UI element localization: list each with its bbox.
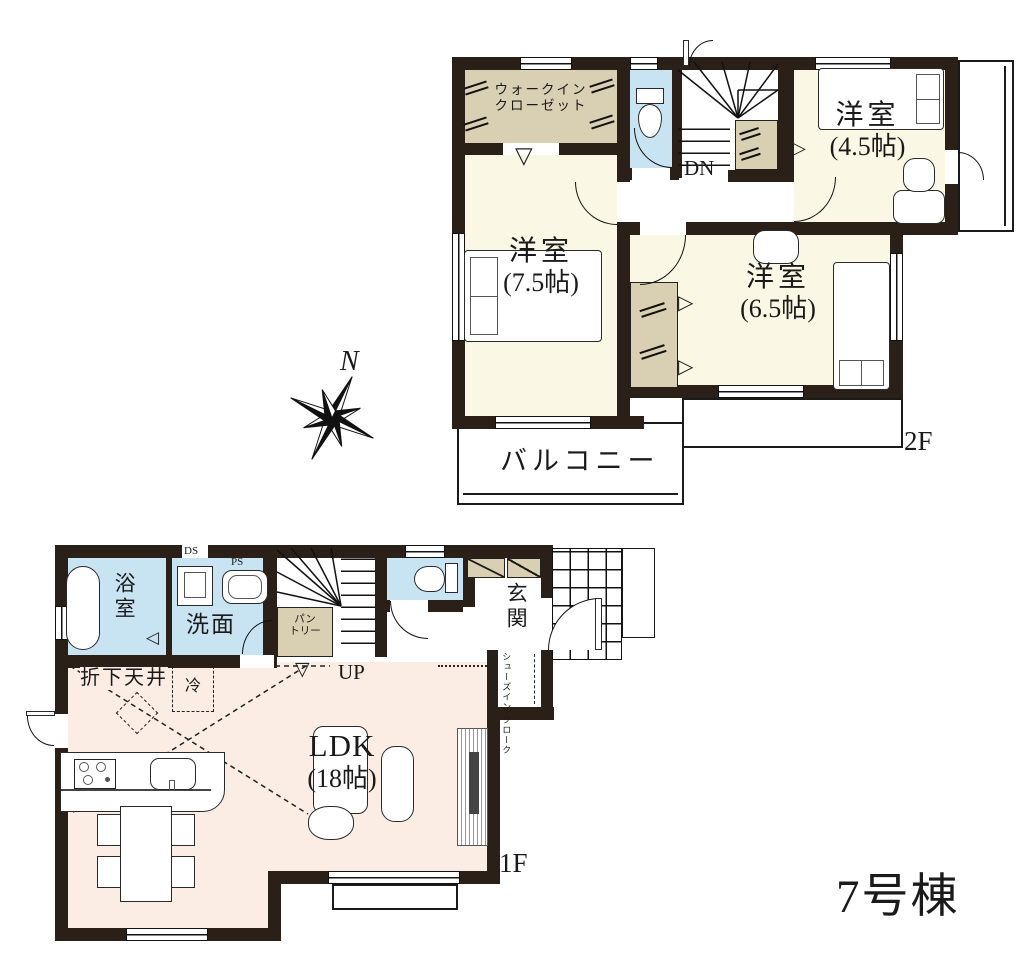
chair-icon [171, 814, 195, 846]
washing-machine-drum [184, 572, 206, 598]
chair-icon [97, 856, 121, 888]
wall [778, 57, 794, 177]
door-opening [640, 222, 686, 235]
approach-step [622, 548, 655, 638]
duct-space-label: DS [184, 545, 198, 558]
entrance-label: 玄関 [504, 582, 528, 632]
bathtub-icon [66, 566, 100, 650]
room-name: 洋室 [470, 236, 612, 268]
kitchen-door-arc [27, 716, 54, 746]
stairs-winder-icon [277, 548, 341, 606]
door-opening [240, 655, 274, 668]
closet-open-icon: ▷ [678, 356, 693, 376]
chair-icon [171, 856, 195, 888]
window [630, 57, 658, 70]
door-opening [945, 150, 958, 184]
window [718, 385, 804, 398]
room-name: 洋室 [795, 100, 940, 132]
tv-icon [469, 752, 479, 814]
room-name: LDK [288, 728, 396, 764]
room-size: (6.5帖) [712, 294, 844, 324]
sic-shelf [534, 654, 535, 704]
sic-line1: シューズイン [501, 652, 511, 712]
room-size: (4.5帖) [795, 132, 940, 162]
bedroom-6-5-label: 洋室 (6.5帖) [712, 262, 844, 324]
bedroom-7-5-label: 洋室 (7.5帖) [470, 236, 612, 298]
terrace-step [332, 884, 458, 910]
stool-icon [753, 230, 799, 264]
shoe-cabinet-icon [507, 558, 541, 578]
stairs-door-icon: ▽ [295, 660, 310, 679]
stairs-treads-icon [341, 548, 375, 648]
floor1-label: 1F [499, 848, 528, 879]
wall [945, 57, 958, 235]
wash-basin-bowl [228, 575, 262, 599]
bedroom-4-5-label: 洋室 (4.5帖) [795, 100, 940, 162]
burner-icon [79, 762, 89, 772]
chair-icon [97, 814, 121, 846]
closet-open-icon: ▷ [678, 292, 693, 312]
pipe-space-label: PS [231, 556, 243, 569]
shoe-cabinet-icon [467, 558, 505, 578]
sic-shelf [494, 654, 495, 704]
toilet-tank-icon [636, 88, 664, 104]
balcony-south-east [682, 398, 903, 448]
pantry-line1: パン [281, 614, 329, 626]
hall-ldk-boundary [438, 665, 490, 667]
sliding-door-balcony [495, 416, 591, 429]
balcony-rail-line [463, 493, 678, 495]
toilet-door-arc [390, 601, 428, 639]
shoes-in-closet-label: シューズイン クローク [498, 652, 513, 706]
washroom-label: 洗面 [186, 612, 236, 638]
room-name: 洋室 [712, 262, 844, 294]
balcony-label: バルコニー [500, 446, 659, 477]
closet-chest [630, 282, 678, 388]
ldk-label: LDK (18帖) [288, 728, 396, 794]
entrance-door-leaf [595, 598, 602, 650]
window [126, 928, 208, 941]
refrigerator-label: 冷 [185, 678, 201, 696]
stairs-down-label: DN [684, 156, 714, 180]
door-arc [689, 40, 713, 66]
wall [166, 558, 172, 655]
toilet-tank-icon [445, 563, 458, 593]
window [520, 57, 572, 70]
window [405, 545, 445, 558]
desk-icon [893, 190, 945, 224]
bath-door-icon: ◁ [146, 630, 159, 647]
wall [375, 545, 387, 657]
pantry-line2: トリー [281, 626, 329, 638]
pillow-icon [839, 360, 884, 386]
faucet-icon [169, 780, 175, 791]
sic-line2: クローク [501, 715, 511, 755]
wall [463, 545, 553, 558]
pantry-label: パン トリー [281, 614, 329, 638]
stairs-winder-icon [678, 62, 778, 118]
burner-icon [83, 775, 93, 785]
ottoman-icon [308, 806, 354, 840]
folding-door-icon: ▽ [515, 145, 533, 168]
burner-icon [96, 762, 106, 772]
wic-line2: クローゼット [473, 98, 609, 114]
window [328, 871, 460, 884]
compass-icon [282, 360, 386, 476]
stairs-up-label: UP [338, 660, 365, 684]
floor2-label: 2F [904, 426, 933, 457]
door-opening [632, 168, 670, 180]
door-opening [55, 714, 68, 748]
window [890, 253, 903, 341]
wall [541, 650, 553, 720]
floor-plan: DN ▽ ▷ ▷ ▷ ウォークイン クローゼット 洋室 (7.5帖) 洋室 (4… [0, 0, 1024, 963]
door-leaf [683, 40, 689, 66]
dropped-ceiling-label: 折下天井 [80, 667, 168, 690]
chair-icon [903, 158, 935, 192]
burner-knob [105, 777, 110, 782]
balcony-rail-line [1004, 66, 1006, 226]
walk-in-closet-label: ウォークイン クローゼット [473, 82, 609, 113]
building-number: 7号棟 [836, 870, 960, 924]
balcony-east [958, 60, 1014, 232]
wall [487, 650, 498, 710]
room-size: (18帖) [288, 764, 396, 794]
wall [617, 57, 630, 182]
wall [728, 170, 794, 182]
room-size: (7.5帖) [470, 268, 612, 298]
dining-table-icon [120, 806, 172, 902]
wic-line1: ウォークイン [473, 82, 609, 98]
toilet-bowl-icon [414, 566, 445, 592]
wall [617, 225, 630, 429]
bath-label: 浴室 [112, 572, 136, 622]
